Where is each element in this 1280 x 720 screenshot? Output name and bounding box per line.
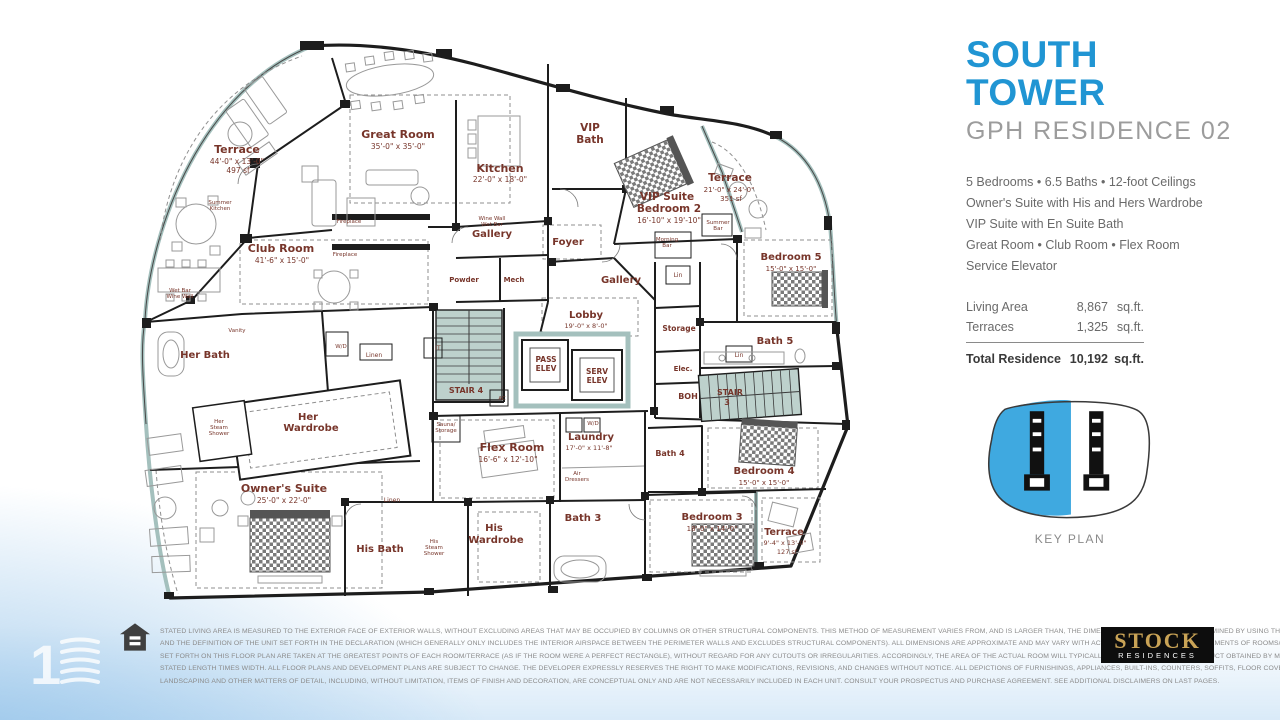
room-label: VIP <box>580 122 600 134</box>
area-total-row: Total Residence10,192sq.ft. <box>966 342 1144 369</box>
disclaimer-text: STATED LIVING AREA IS MEASURED TO THE EX… <box>160 626 1095 688</box>
feature-list: 5 Bedrooms • 6.5 Baths • 12-foot Ceiling… <box>966 172 1266 277</box>
room-label: STAIR 4 <box>449 386 484 395</box>
room-label: Club Room <box>248 242 314 255</box>
disclaimer-line: SET FORTH ON THIS FLOOR PLAN ARE TAKEN A… <box>160 651 1095 663</box>
room-label: Kitchen <box>476 162 523 175</box>
area-lab: Terraces <box>966 317 1064 337</box>
room-label: 35'-0" x 35'-0" <box>371 142 425 151</box>
area-lab: Living Area <box>966 297 1064 317</box>
residence-subtitle: GPH RESIDENCE 02 <box>966 117 1266 146</box>
disclaimer-line: AND THE DEFINITION OF THE UNIT SET FORTH… <box>160 638 1095 650</box>
room-label: 127 sf <box>777 548 798 556</box>
room-label: 18'-0" x 14'-0" <box>687 525 738 533</box>
disclaimer-line: LANDSCAPING AND OTHER MATTERS OF DETAIL,… <box>160 676 1095 688</box>
stock-logo-title: STOCK <box>1114 631 1201 651</box>
area-unit: sq.ft. <box>1108 317 1144 337</box>
room-label: STAIR <box>717 388 743 397</box>
room-label: Storage <box>662 324 695 333</box>
key-plan: KEY PLAN <box>974 394 1166 546</box>
room-label: W/D <box>587 421 599 427</box>
room-label: Wine Wall <box>167 294 194 300</box>
title-line-1: SOUTH <box>966 36 1266 74</box>
room-label: Bath <box>576 134 604 146</box>
room-label: Fireplace <box>337 219 362 225</box>
area-val: 10,192 <box>1064 349 1108 369</box>
key-plan-core-right <box>1083 411 1109 490</box>
room-label: Bath 4 <box>655 449 685 458</box>
room-label: 44'-0" x 13'-0" <box>210 157 264 166</box>
room-label: Wet Bar <box>481 222 504 228</box>
info-panel: SOUTH TOWER GPH RESIDENCE 02 5 Bedrooms … <box>966 36 1266 369</box>
stock-residences-logo: STOCK RESIDENCES <box>1101 627 1214 663</box>
area-row: Living Area8,867sq.ft. <box>966 297 1144 317</box>
room-label: Bedroom 4 <box>733 466 794 477</box>
one-building-watermark: 1 <box>30 634 102 690</box>
equal-housing-icon <box>118 622 152 652</box>
stock-logo-subtitle: RESIDENCES <box>1118 651 1197 660</box>
room-label: Flex Room <box>480 441 545 454</box>
title-line-2: TOWER <box>966 74 1266 112</box>
room-label: Shower <box>209 431 230 437</box>
room-label: W/D <box>335 344 347 350</box>
stair-3 <box>698 369 801 422</box>
room-label: Her Bath <box>180 350 230 361</box>
room-label: Wardrobe <box>468 535 523 546</box>
room-label: ELEV <box>587 376 608 385</box>
room-label: Foyer <box>552 237 584 248</box>
area-val: 1,325 <box>1064 317 1108 337</box>
room-label: 17'-0" x 11'-8" <box>565 444 612 452</box>
disclaimer-line: STATED LIVING AREA IS MEASURED TO THE EX… <box>160 626 1095 638</box>
feature-item: Great Room • Club Room • Flex Room <box>966 235 1266 256</box>
room-label: AC <box>498 396 506 402</box>
room-label: Laundry <box>568 432 614 443</box>
room-label: Bath 3 <box>565 513 602 524</box>
room-label: Bath 5 <box>757 336 794 347</box>
area-table: Living Area8,867sq.ft.Terraces1,325sq.ft… <box>966 297 1144 369</box>
room-label: Lobby <box>569 310 604 321</box>
room-label: Elec. <box>674 365 693 373</box>
room-label: IT <box>435 345 441 352</box>
room-label: 41'-6" x 15'-0" <box>255 256 309 265</box>
room-label: 16'-6" x 12'-10" <box>478 455 537 464</box>
room-label: 351 sf <box>720 195 742 203</box>
room-label: Dressers <box>565 477 589 483</box>
room-label: Gallery <box>601 275 642 286</box>
key-plan-map <box>974 394 1166 526</box>
room-label: 16'-10" x 19'-10" <box>637 216 701 225</box>
room-label: SERV <box>586 367 608 376</box>
room-label: 3 <box>724 398 730 407</box>
feature-item: Owner's Suite with His and Hers Wardrobe <box>966 193 1266 214</box>
room-label: Terrace <box>764 527 804 538</box>
room-label: Bedroom 3 <box>681 512 742 523</box>
room-label: 15'-0" x 15'-0" <box>739 479 790 487</box>
room-label: PASS <box>535 355 556 364</box>
feature-item: VIP Suite with En Suite Bath <box>966 214 1266 235</box>
room-label: 9'-4" x 13'-0" <box>764 539 807 547</box>
room-label: Fireplace <box>333 252 358 258</box>
room-label: Her <box>298 412 318 423</box>
room-label: Kitchen <box>210 206 231 212</box>
room-label: Lin <box>674 272 683 279</box>
room-label: 25'-0" x 22'-0" <box>257 496 311 505</box>
room-label: His Bath <box>356 544 404 555</box>
room-label: 21'-0" x 24'-0" <box>704 186 755 194</box>
area-unit: sq.ft. <box>1108 349 1144 369</box>
room-label: Gallery <box>472 229 513 240</box>
room-label: Bedroom 5 <box>760 252 821 263</box>
watermark-numeral: 1 <box>30 634 61 690</box>
room-label: Terrace <box>708 172 752 184</box>
area-row: Terraces1,325sq.ft. <box>966 317 1144 337</box>
area-val: 8,867 <box>1064 297 1108 317</box>
room-label: VIP Suite <box>640 191 694 203</box>
room-label: Shower <box>424 551 445 557</box>
room-label: Wardrobe <box>283 423 338 434</box>
room-label: Terrace <box>214 143 260 156</box>
room-label: Storage <box>435 428 457 434</box>
room-label: 15'-0" x 15'-0" <box>766 265 817 273</box>
room-label: Bar <box>713 226 723 232</box>
room-label: Linen <box>384 497 401 504</box>
room-label: Bar <box>662 243 672 249</box>
feature-item: Service Elevator <box>966 256 1266 277</box>
room-label: Vanity <box>228 328 246 334</box>
area-unit: sq.ft. <box>1108 297 1144 317</box>
room-label: Mech <box>504 276 525 284</box>
key-plan-label: KEY PLAN <box>974 532 1166 546</box>
room-label: Lin <box>735 352 744 359</box>
room-label: 497 sf <box>226 166 250 175</box>
area-lab: Total Residence <box>966 349 1064 369</box>
room-label: Great Room <box>361 128 434 141</box>
room-label: 19'-0" x 8'-0" <box>565 322 608 330</box>
room-label: Linen <box>366 352 383 359</box>
room-label: Owner's Suite <box>241 482 327 495</box>
room-label: His <box>485 523 503 534</box>
room-label: Bedroom 2 <box>637 203 701 215</box>
room-label: BOH <box>678 392 698 401</box>
page-title: SOUTH TOWER <box>966 36 1266 112</box>
room-label: ELEV <box>536 364 557 373</box>
feature-item: 5 Bedrooms • 6.5 Baths • 12-foot Ceiling… <box>966 172 1266 193</box>
room-label: 22'-0" x 18'-0" <box>473 175 527 184</box>
room-label: Powder <box>449 276 479 284</box>
disclaimer-line: STATED LENGTH TIMES WIDTH. ALL FLOOR PLA… <box>160 663 1095 675</box>
